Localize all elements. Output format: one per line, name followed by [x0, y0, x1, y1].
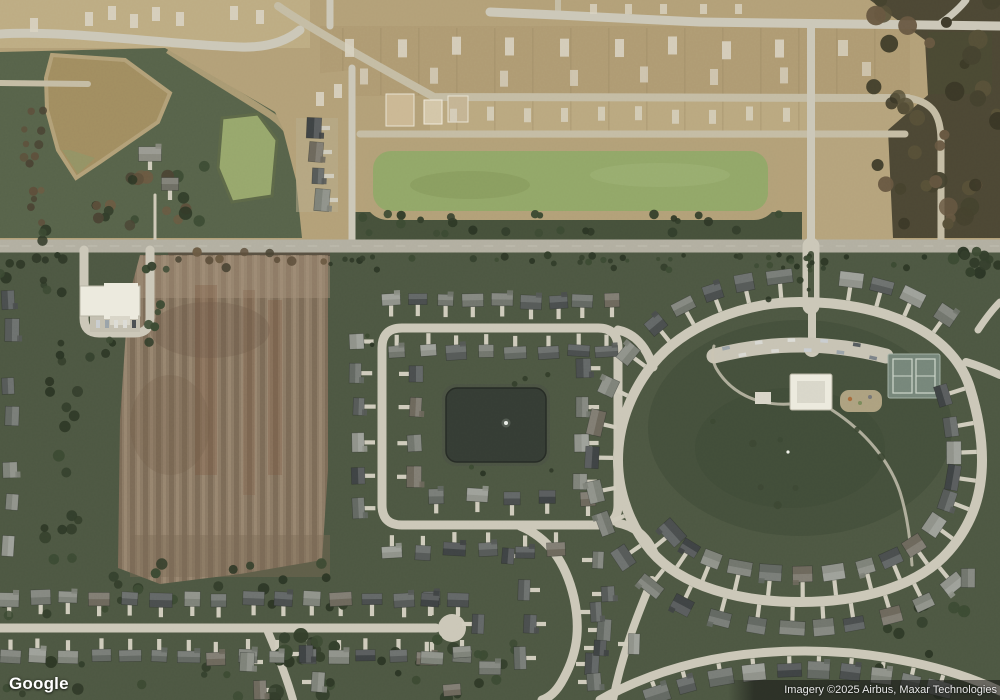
- google-watermark: Google: [9, 674, 69, 694]
- imagery-grain: [0, 0, 1000, 700]
- map-canvas[interactable]: Google Imagery ©2025 Airbus, Maxar Techn…: [0, 0, 1000, 700]
- satellite-imagery: [0, 0, 1000, 700]
- attribution-bar: Imagery ©2025 Airbus, Maxar Technologies: [728, 680, 1000, 700]
- attribution-text: Imagery ©2025 Airbus, Maxar Technologies: [784, 680, 997, 700]
